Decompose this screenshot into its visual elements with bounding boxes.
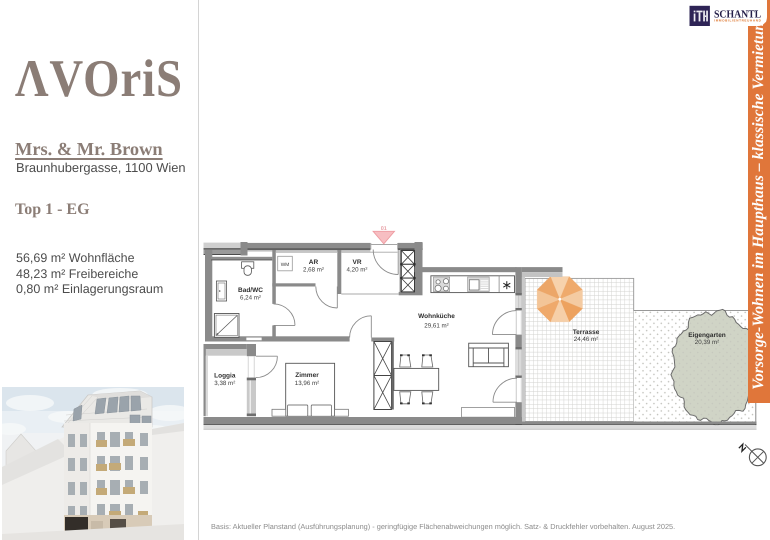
svg-text:2,68 m²: 2,68 m² [303,267,324,274]
svg-text:Bad/WC: Bad/WC [238,287,263,294]
svg-text:Wohnküche: Wohnküche [418,313,455,320]
svg-text:Zimmer: Zimmer [295,372,319,379]
svg-text:6,24 m²: 6,24 m² [240,295,261,302]
svg-text:AR: AR [309,259,319,266]
svg-text:29,61 m²: 29,61 m² [424,323,448,330]
svg-text:24,46 m²: 24,46 m² [574,336,598,343]
svg-text:WM: WM [281,262,290,268]
svg-text:IMMOBILIENTREUHAND: IMMOBILIENTREUHAND [714,19,761,23]
svg-text:4,20 m²: 4,20 m² [347,267,368,274]
svg-text:3,38 m²: 3,38 m² [214,380,235,387]
svg-text:Terrasse: Terrasse [573,329,600,336]
svg-text:VR: VR [352,259,361,266]
svg-text:13,96 m²: 13,96 m² [295,380,319,387]
svg-text:Eigengarten: Eigengarten [688,332,726,339]
svg-text:Loggia: Loggia [214,373,236,380]
svg-text:20,39 m²: 20,39 m² [695,339,719,346]
